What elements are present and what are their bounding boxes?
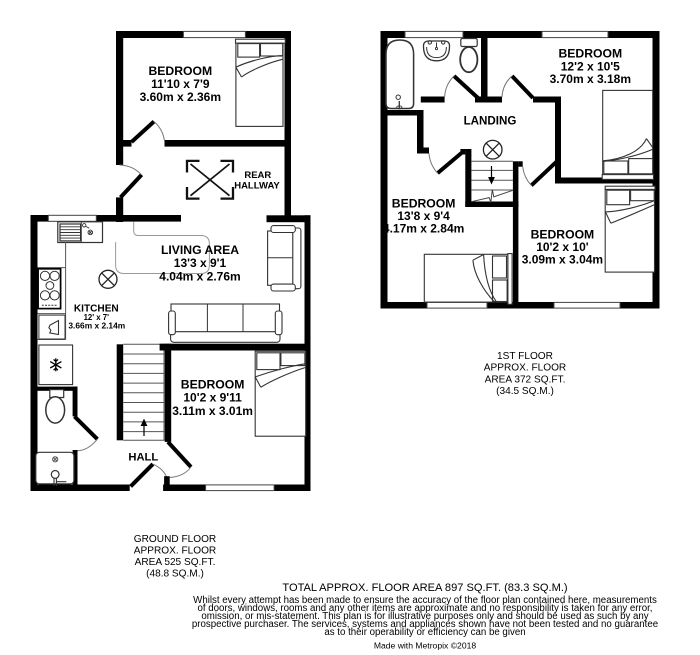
svg-text:APPROX. FLOOR: APPROX. FLOOR xyxy=(484,363,566,374)
svg-text:BEDROOM: BEDROOM xyxy=(181,378,245,392)
svg-text:3.60m x 2.36m: 3.60m x 2.36m xyxy=(140,90,221,104)
svg-text:1ST FLOOR: 1ST FLOOR xyxy=(497,351,553,362)
svg-text:10'2 x 9'11: 10'2 x 9'11 xyxy=(183,391,242,405)
svg-text:TOTAL APPROX. FLOOR AREA 897 S: TOTAL APPROX. FLOOR AREA 897 SQ.FT. (83.… xyxy=(282,582,567,594)
svg-text:3.66m x 2.14m: 3.66m x 2.14m xyxy=(68,321,125,331)
svg-text:4.04m x 2.76m: 4.04m x 2.76m xyxy=(159,270,240,284)
svg-text:AREA 525 SQ.FT.: AREA 525 SQ.FT. xyxy=(135,557,216,568)
svg-text:LANDING: LANDING xyxy=(464,114,517,127)
svg-text:11'10 x 7'9: 11'10 x 7'9 xyxy=(151,77,210,91)
svg-text:as to their operability or eff: as to their operability or efficiency ca… xyxy=(324,627,525,638)
svg-text:GROUND FLOOR: GROUND FLOOR xyxy=(134,534,216,545)
svg-text:3.09m x 3.04m: 3.09m x 3.04m xyxy=(522,253,603,267)
svg-text:APPROX. FLOOR: APPROX. FLOOR xyxy=(134,545,216,556)
svg-text:13'3 x 9'1: 13'3 x 9'1 xyxy=(174,256,227,270)
svg-text:Made with Metropix ©2018: Made with Metropix ©2018 xyxy=(374,640,477,650)
svg-text:LIVING AREA: LIVING AREA xyxy=(161,243,239,257)
svg-text:(48.8 SQ.M.): (48.8 SQ.M.) xyxy=(146,569,204,580)
svg-text:AREA 372 SQ.FT.: AREA 372 SQ.FT. xyxy=(485,374,566,385)
svg-text:(34.5 SQ.M.): (34.5 SQ.M.) xyxy=(496,386,554,397)
svg-text:3.70m x 3.18m: 3.70m x 3.18m xyxy=(550,72,631,86)
svg-text:HALLWAY: HALLWAY xyxy=(234,181,280,192)
svg-text:HALL: HALL xyxy=(128,451,158,463)
svg-text:BEDROOM: BEDROOM xyxy=(148,64,212,78)
svg-text:4.17m x 2.84m: 4.17m x 2.84m xyxy=(383,222,464,236)
svg-text:3.11m x 3.01m: 3.11m x 3.01m xyxy=(172,404,253,418)
